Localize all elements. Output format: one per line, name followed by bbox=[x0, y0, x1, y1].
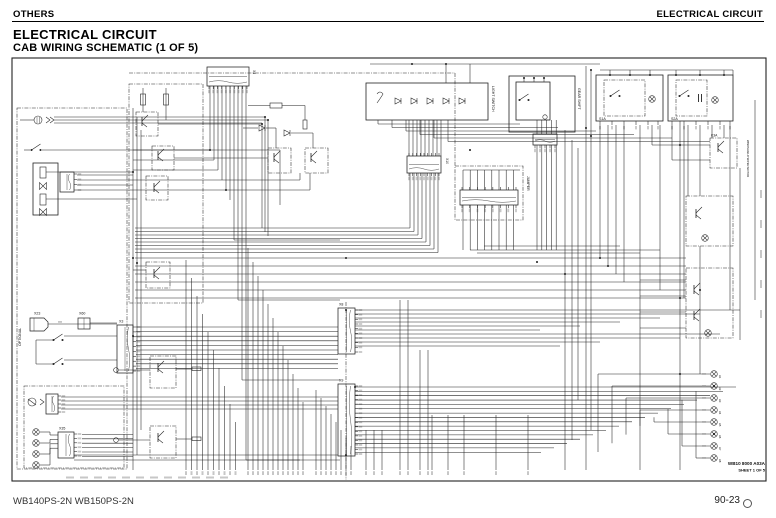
light-switch-label: LIGHT SWITCH bbox=[491, 86, 495, 112]
connector-x35-label: X35 bbox=[59, 427, 65, 431]
lamp-label: H4 bbox=[718, 411, 722, 415]
footer-model: WB140PS-2N WB150PS-2N bbox=[13, 496, 134, 507]
lamp-label: H8 bbox=[718, 459, 722, 463]
lamp-label: H5 bbox=[718, 423, 722, 427]
wiper-motor-label: WINDSHIELD WIPER MOTOR bbox=[746, 140, 750, 177]
optional-label: OPTIONAL bbox=[18, 328, 22, 346]
connector-x3-label: X3 bbox=[119, 320, 123, 324]
gear-shift-label: GEAR SHIFT bbox=[577, 88, 581, 110]
connector-x9-label: X9 bbox=[339, 379, 343, 383]
footer-page-number: 90-23 bbox=[714, 495, 740, 506]
jumper-label: JUMPER bbox=[526, 176, 530, 191]
lamp-label: H2 bbox=[718, 387, 722, 391]
manual-page: OTHERS ELECTRICAL CIRCUIT ELECTRICAL CIR… bbox=[0, 0, 776, 518]
schematic-labels: LIGHT SWITCH GEAR SHIFT JUMPER OPTIONAL … bbox=[18, 70, 766, 473]
lamp-label: H6 bbox=[718, 435, 722, 439]
schematic-geometry: H1H2H3H4H5H6H7H8 bbox=[12, 58, 766, 481]
revision-mark bbox=[743, 499, 752, 508]
switch-s1a-label: S1A bbox=[599, 117, 606, 121]
connector-x10-label: X10 bbox=[445, 158, 449, 164]
connector-x60-label: X60 bbox=[79, 312, 85, 316]
relay-k3a-label: K3A bbox=[711, 134, 718, 138]
sheet-code: WB10 8000 A03A bbox=[728, 461, 766, 466]
cab-wiring-schematic: H1H2H3H4H5H6H7H8 LIGHT SWITCH GEAR SHIFT… bbox=[0, 0, 776, 518]
connector-x4-label: X4 bbox=[252, 70, 256, 74]
switch-s2a-label: S2A bbox=[671, 117, 678, 121]
lamp-label: H3 bbox=[718, 399, 722, 403]
connector-x8-label: X8 bbox=[339, 303, 343, 307]
connector-x23-label: X23 bbox=[34, 312, 40, 316]
lamp-label: H7 bbox=[718, 447, 722, 451]
lamp-label: H1 bbox=[718, 375, 722, 379]
sheet-number: SHEET 1 OF 5 bbox=[738, 468, 765, 473]
